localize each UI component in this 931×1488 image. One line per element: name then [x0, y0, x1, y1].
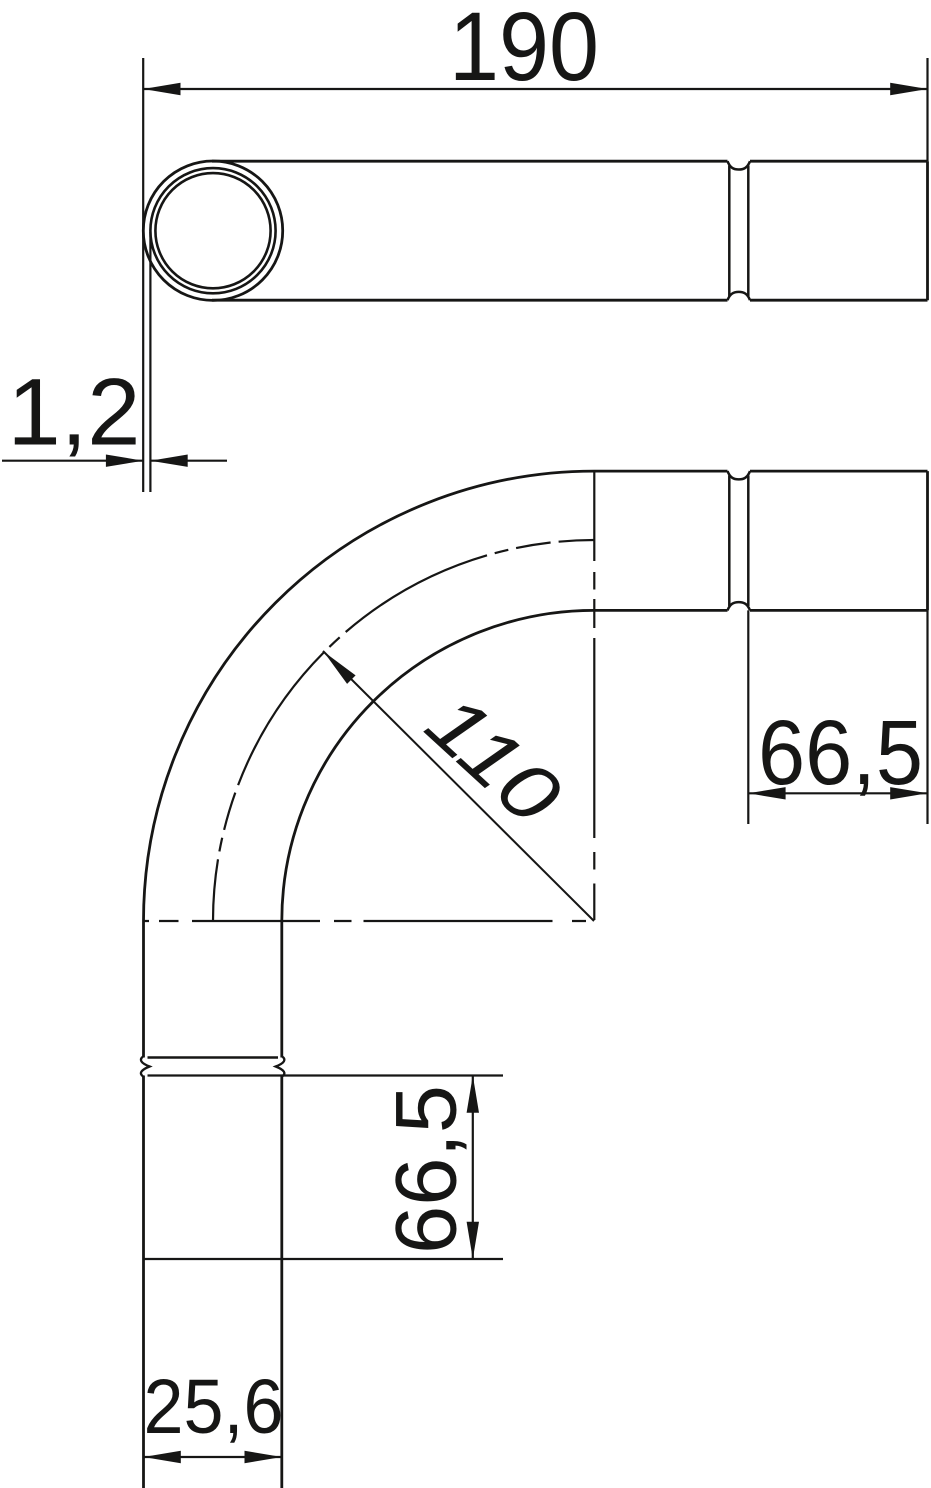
svg-text:66,5: 66,5: [758, 702, 923, 804]
svg-text:1,2: 1,2: [8, 360, 141, 466]
svg-text:66,5: 66,5: [379, 1085, 475, 1254]
svg-text:190: 190: [449, 0, 599, 101]
svg-text:25,6: 25,6: [144, 1364, 284, 1450]
